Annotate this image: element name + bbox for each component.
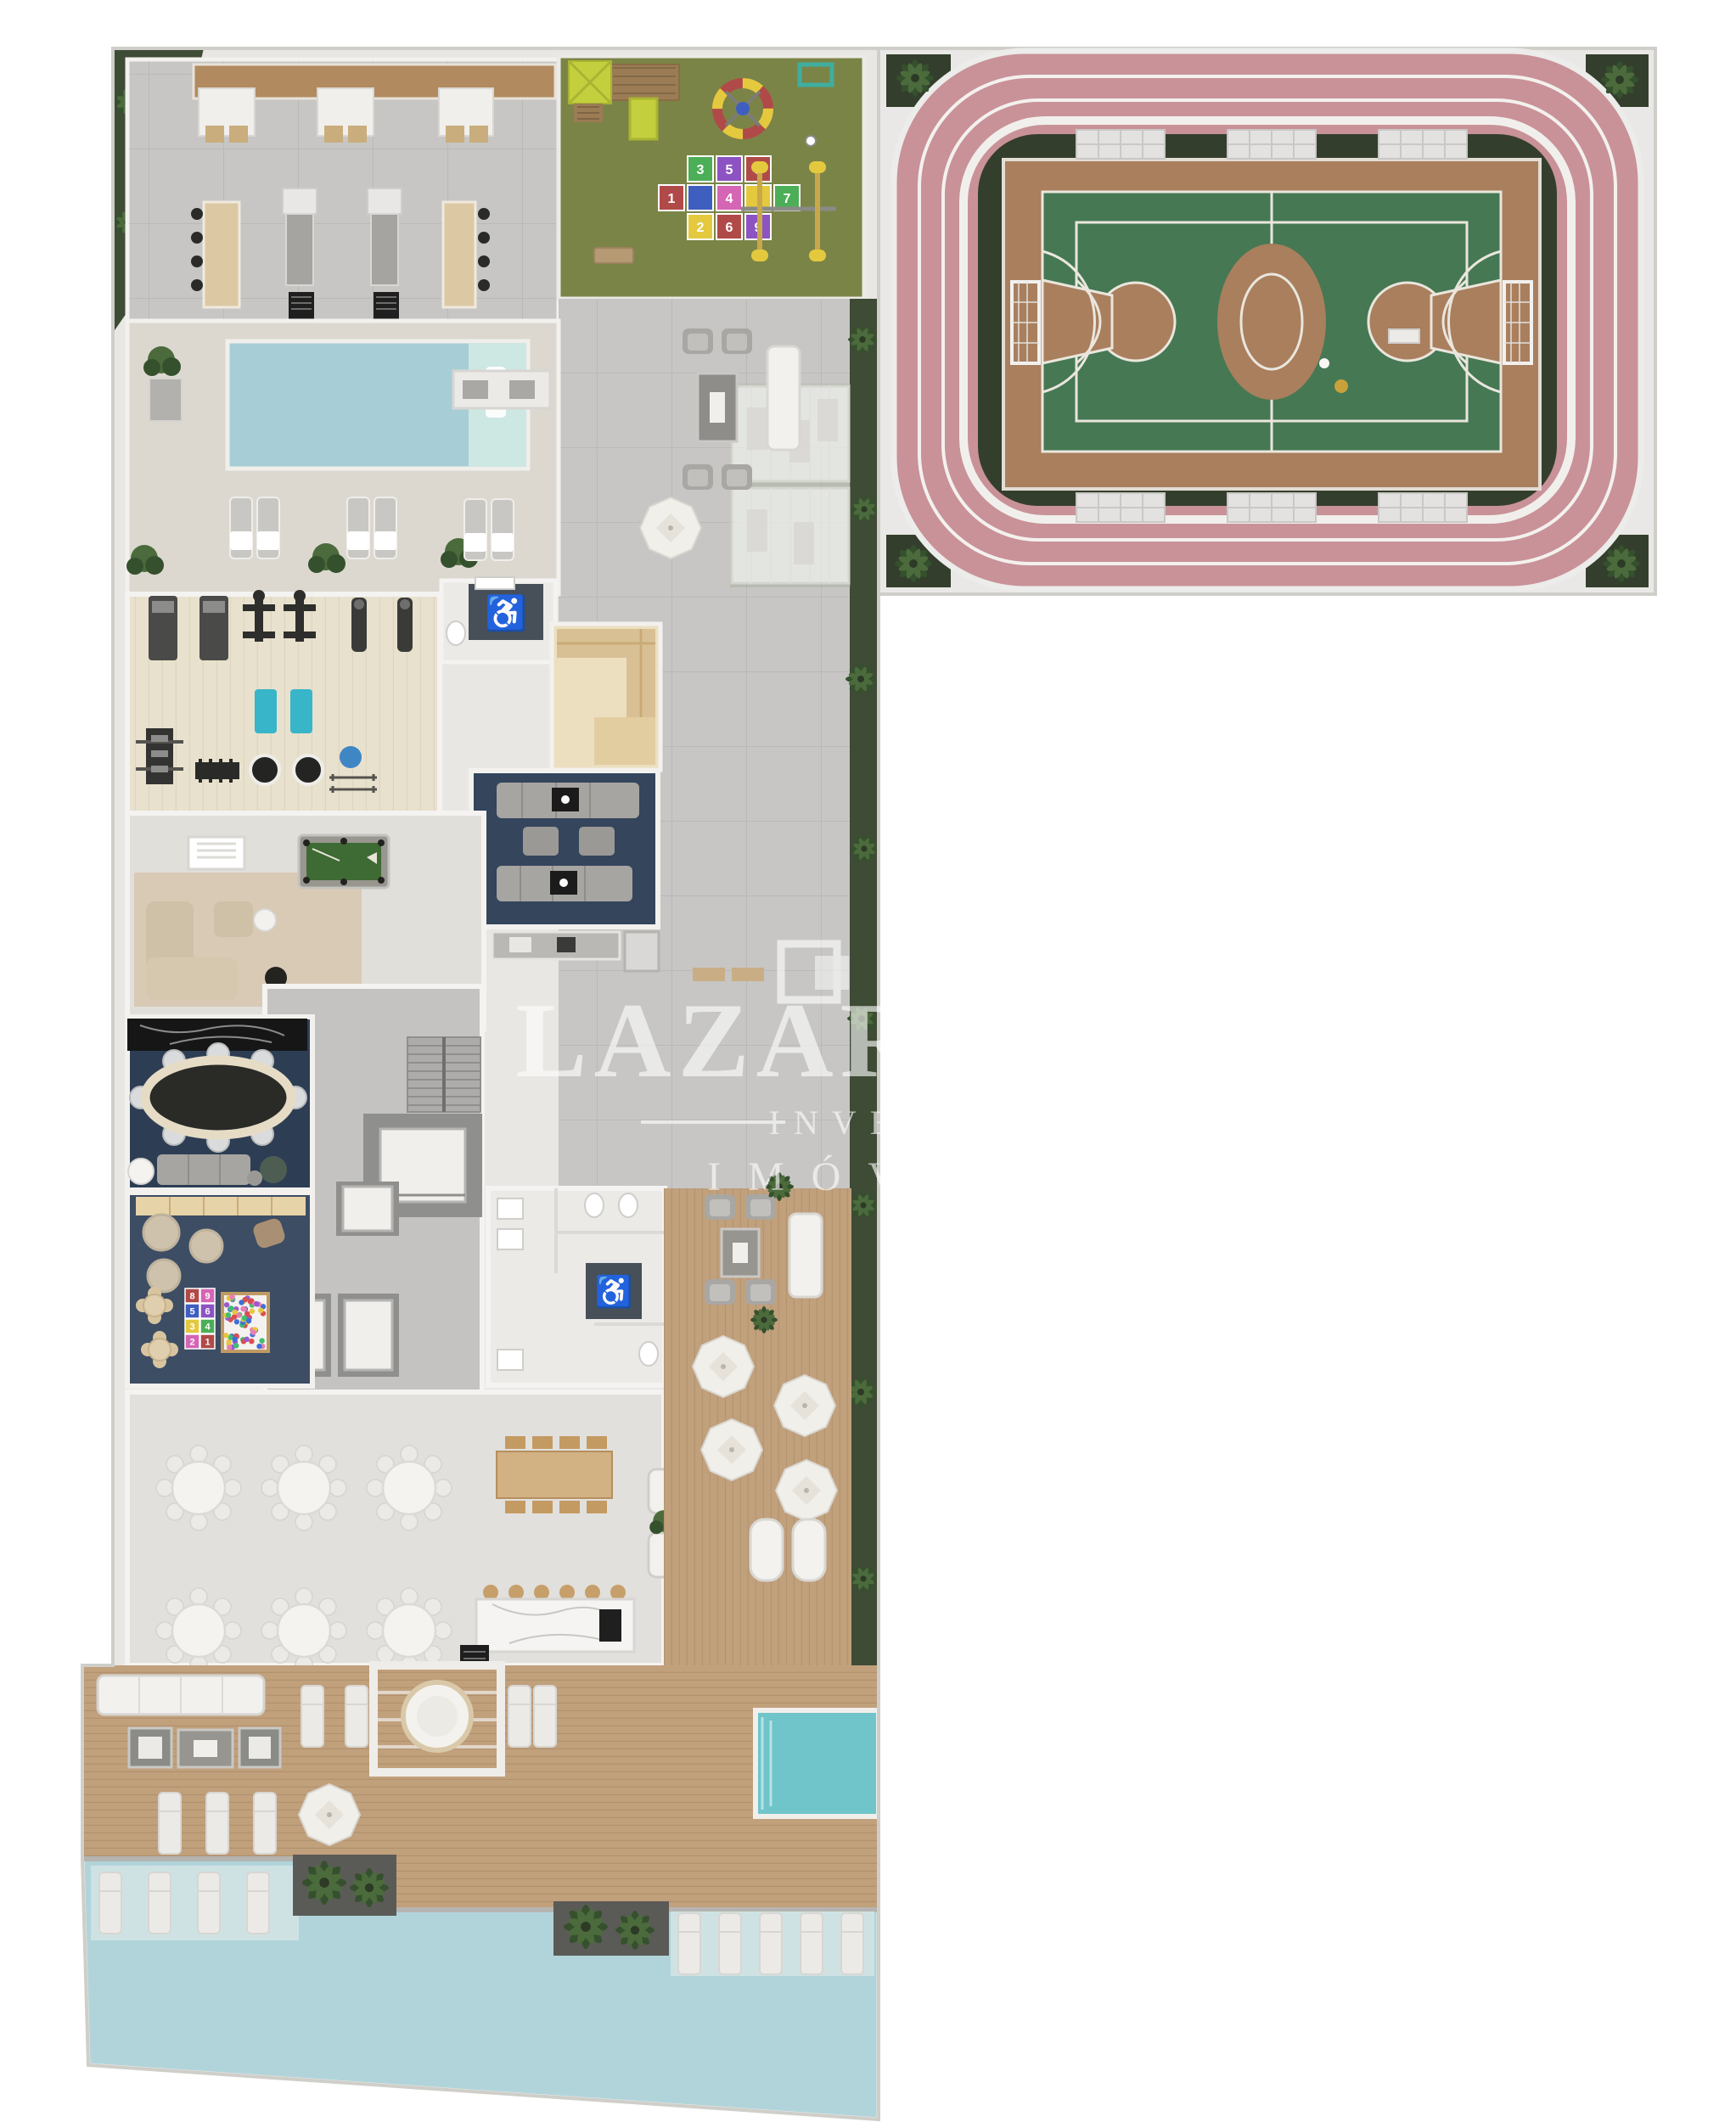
toilet [585,1193,604,1217]
toy-cabinet [136,1197,306,1215]
ball-pit-ball [250,1330,256,1335]
weight-plate [250,755,279,784]
pouf [247,1170,262,1186]
ball-pit-ball [239,1300,244,1305]
mat-number: 9 [205,1292,210,1302]
bean-bag [143,1215,179,1250]
court-bench [1389,329,1419,343]
exercise-ball [340,746,362,768]
fridge [625,932,659,971]
accessible-wc-lower: ♿ [586,1263,642,1319]
bean-bag [148,1260,180,1292]
spa-pool [756,1710,879,1816]
weight-plate [294,755,323,784]
hopscotch-number: 7 [784,192,791,206]
watermark-line3: IMÓVEIS [707,1154,1067,1199]
pouf [260,1156,287,1183]
ball-pit-ball [242,1316,247,1321]
pool-planter [293,1855,396,1916]
running-track-block [879,48,1655,594]
ball-pit-ball [227,1344,232,1350]
ball [1334,379,1348,393]
canopy-lounger [750,1519,783,1580]
yoga-mat [290,689,312,733]
ball-pit-ball [254,1301,259,1306]
wheelchair-icon: ♿ [485,593,527,632]
football [806,136,816,146]
watermark-brand: LAZAROTTO [516,982,1259,1100]
mat-number: 3 [189,1322,194,1333]
sauna [552,624,660,770]
wheelchair-icon: ♿ [595,1274,633,1309]
bbq-tables [199,88,493,143]
ball-pit-ball [259,1338,264,1343]
hopscotch-number: 2 [697,221,705,235]
canopy-lounger [793,1519,825,1580]
pool-bench [149,379,182,421]
bench [693,968,725,981]
ball-pit-ball [249,1339,254,1344]
ball-pit-ball [250,1309,255,1314]
billiards-table [299,835,389,888]
ball-pit-ball [224,1302,229,1307]
shelf-table [188,837,244,869]
elevator-car [345,1300,392,1370]
sofa [157,1154,250,1185]
mat-number: 1 [205,1338,210,1348]
gym [127,590,440,813]
toilet [619,1193,638,1217]
mat-number: 5 [189,1307,194,1317]
ottoman [523,827,559,856]
hopscotch-number: 3 [697,163,705,177]
changing-cabins [453,371,550,408]
toilet [447,621,465,645]
hopscotch-number: 1 [668,192,676,206]
floorplan-render: 358147269 [0,0,1736,2122]
ball-pit-ball [223,1333,228,1338]
mat-number: 8 [189,1292,194,1302]
ball-pit-ball [244,1337,250,1342]
tv-lounge [471,771,658,927]
outdoor-sofa [789,1214,822,1297]
park-bench [594,248,633,263]
ball-pit-ball [256,1344,261,1349]
gourmet-dining [127,1017,312,1190]
ball-pit-ball [233,1343,239,1348]
ottoman [579,827,615,856]
mat-number: 6 [205,1307,210,1317]
ball-pit-ball [248,1299,253,1304]
mat-number: 2 [189,1338,194,1348]
restrooms: ♿ [488,1188,665,1385]
bench [732,968,764,981]
hopscotch-number: 5 [726,163,733,177]
ball-pit-ball [241,1306,246,1311]
ball-pit [222,1294,268,1351]
hopscotch-number: 4 [726,192,733,206]
yoga-mat [255,689,277,733]
bean-bag [190,1230,222,1262]
hopscotch-tile [688,185,713,211]
ball-pit-ball [232,1337,237,1342]
barbecue-lounge [127,59,559,321]
toilet [639,1342,658,1366]
accessible-wc-upper: ♿ [441,577,555,662]
ball [1319,358,1329,368]
side-table [128,1159,154,1184]
ball-pit-ball [258,1308,263,1313]
ball-pit-ball [234,1319,239,1324]
number-mat: 89563421 [185,1288,215,1349]
watermark-line2: INVESTE [769,1103,1006,1142]
outdoor-sofa [767,346,800,450]
kids-playroom: 89563421 [127,1193,312,1386]
slide [630,98,657,139]
ball-pit-ball [229,1294,234,1300]
pool-area [126,321,559,594]
elevator-car [343,1187,392,1231]
mat-number: 4 [205,1322,211,1333]
pool-planter [553,1901,669,1956]
playground: 358147269 [559,56,864,299]
ball-pit-ball [226,1312,231,1317]
stairwell [407,1037,480,1112]
ball-pit-ball [232,1314,237,1319]
sports-court [1003,160,1540,489]
ball-pit-ball [232,1310,237,1315]
hopscotch-number: 6 [726,221,733,235]
